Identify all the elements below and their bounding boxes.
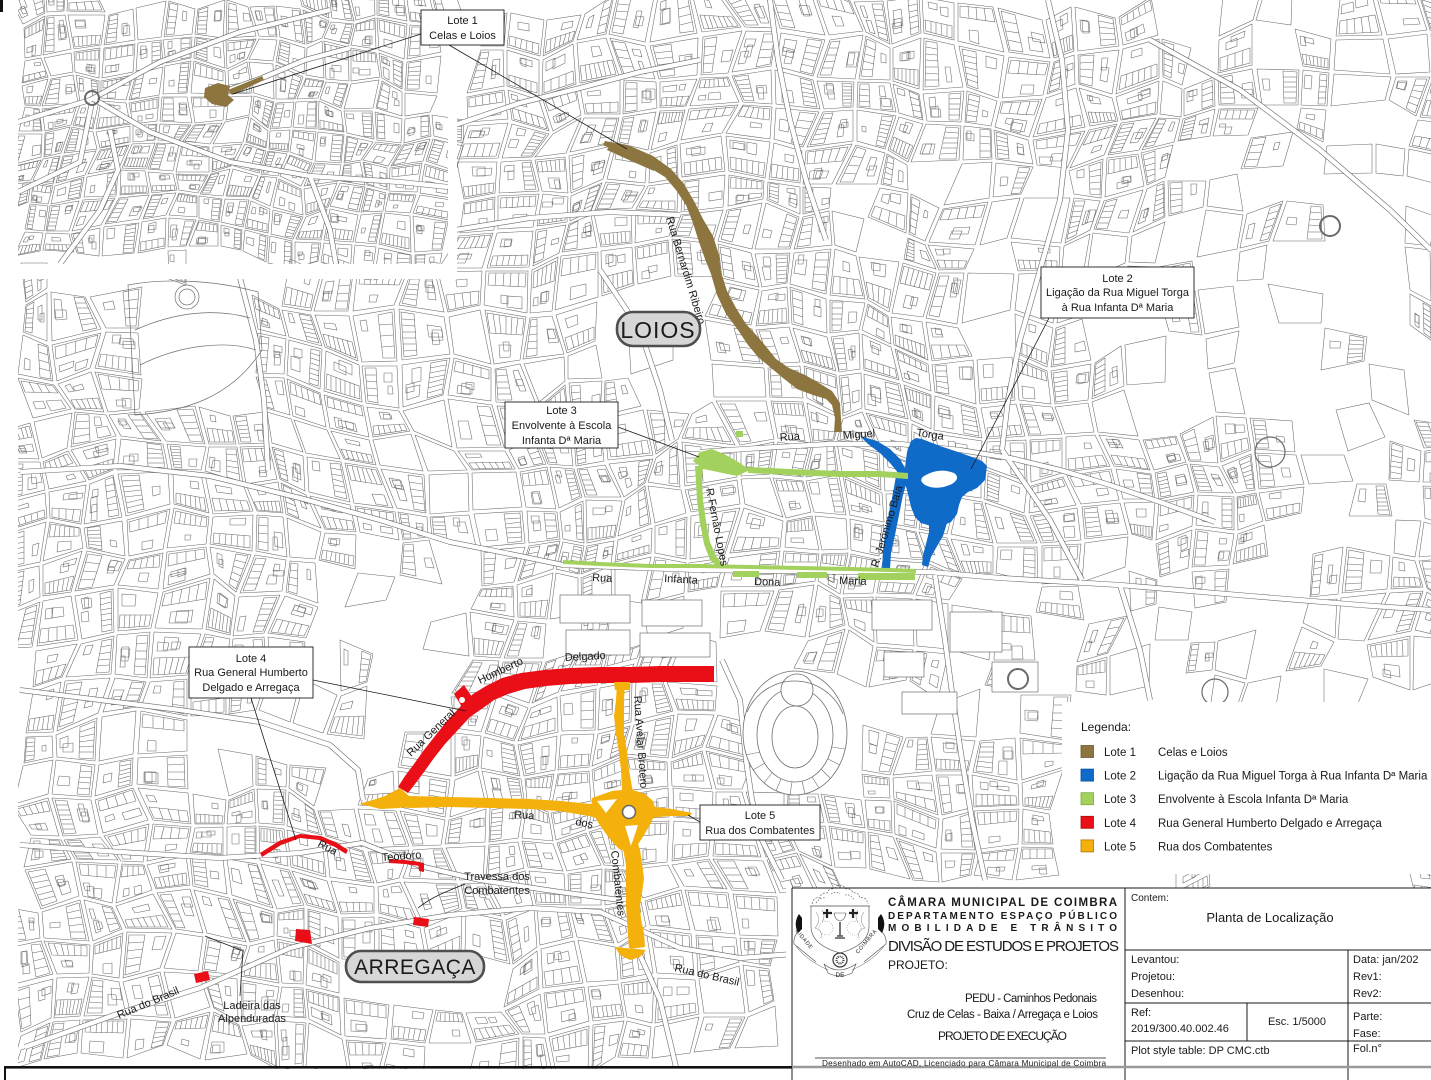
svg-text:Cruz de Celas - Baixa / Arrega: Cruz de Celas - Baixa / Arregaça e Loios: [907, 1009, 1098, 1021]
svg-text:Rua: Rua: [592, 572, 614, 585]
svg-text:LOIOS: LOIOS: [620, 317, 695, 343]
svg-text:Envolvente à Escola Infanta Dª: Envolvente à Escola Infanta Dª Maria: [1158, 794, 1349, 806]
svg-text:Lote 5: Lote 5: [1104, 841, 1136, 853]
svg-text:Miguel: Miguel: [842, 428, 875, 442]
svg-text:Rua dos Combatentes: Rua dos Combatentes: [1158, 841, 1273, 853]
svg-text:Desenhou:: Desenhou:: [1131, 988, 1184, 1000]
svg-text:Lote 3: Lote 3: [546, 405, 577, 417]
svg-text:Rev1:: Rev1:: [1353, 971, 1382, 983]
svg-text:Rua General Humberto: Rua General Humberto: [194, 667, 308, 679]
svg-text:Projetou:: Projetou:: [1131, 971, 1175, 983]
svg-text:Lote 5: Lote 5: [745, 810, 776, 822]
svg-text:PROJETO:: PROJETO:: [888, 958, 948, 972]
svg-text:Ladeira das: Ladeira das: [223, 1000, 281, 1012]
svg-text:Desenhado em AutoCAD, Licencia: Desenhado em AutoCAD, Licenciado para Câ…: [822, 1059, 1106, 1068]
svg-text:CÂMARA MUNICIPAL DE COIMBRA: CÂMARA MUNICIPAL DE COIMBRA: [888, 896, 1117, 909]
svg-text:Planta de Localização: Planta de Localização: [1206, 910, 1333, 925]
svg-text:Travessa dos: Travessa dos: [464, 871, 530, 883]
svg-text:Plot style table: DP CMC.ctb: Plot style table: DP CMC.ctb: [1131, 1045, 1270, 1057]
svg-text:Infanta: Infanta: [664, 573, 699, 587]
svg-text:Levantou:: Levantou:: [1131, 954, 1179, 966]
svg-text:Rua: Rua: [514, 809, 536, 822]
svg-text:à Rua Infanta Dª Maria: à Rua Infanta Dª Maria: [1062, 302, 1175, 314]
svg-text:Rua dos Combatentes: Rua dos Combatentes: [705, 825, 815, 837]
svg-text:Lote 1: Lote 1: [447, 15, 478, 27]
svg-text:Envolvente à Escola: Envolvente à Escola: [512, 420, 613, 432]
svg-text:Ref:: Ref:: [1131, 1007, 1151, 1019]
svg-text:DE: DE: [835, 972, 845, 979]
svg-text:PROJETO DE EXECUÇÃO: PROJETO DE EXECUÇÃO: [938, 1029, 1067, 1043]
svg-text:Ligação da Rua Miguel Torga: Ligação da Rua Miguel Torga: [1046, 287, 1190, 299]
svg-text:Contem:: Contem:: [1131, 893, 1169, 904]
svg-text:Dona: Dona: [754, 576, 782, 589]
svg-text:Lote 3: Lote 3: [1104, 794, 1136, 806]
svg-text:Rua: Rua: [779, 431, 801, 444]
svg-text:Infanta Dª Maria: Infanta Dª Maria: [522, 435, 602, 447]
svg-text:Delgado e Arregaça: Delgado e Arregaça: [202, 682, 300, 694]
svg-text:Parte:: Parte:: [1353, 1011, 1382, 1023]
svg-text:Celas e Loios: Celas e Loios: [429, 30, 496, 42]
svg-text:Combatentes: Combatentes: [464, 885, 530, 897]
svg-text:Delgado: Delgado: [565, 650, 607, 664]
svg-text:Maria: Maria: [839, 575, 868, 588]
svg-text:Alpenduradas: Alpenduradas: [218, 1013, 286, 1025]
svg-text:Data: jan/202: Data: jan/202: [1353, 954, 1418, 966]
svg-text:Lote 2: Lote 2: [1104, 771, 1136, 783]
svg-text:Ligação da Rua Miguel Torga à: Ligação da Rua Miguel Torga à Rua Infant…: [1158, 771, 1428, 783]
svg-text:Fase:: Fase:: [1353, 1028, 1381, 1040]
svg-text:PEDU - Caminhos Pedonais: PEDU - Caminhos Pedonais: [965, 993, 1097, 1005]
svg-text:Celas e Loios: Celas e Loios: [1158, 747, 1228, 759]
svg-text:Esc. 1/5000: Esc. 1/5000: [1268, 1016, 1326, 1028]
svg-text:2019/300.40.002.46: 2019/300.40.002.46: [1131, 1023, 1229, 1035]
svg-text:DIVISÃO DE ESTUDOS E PROJETOS: DIVISÃO DE ESTUDOS E PROJETOS: [888, 938, 1119, 955]
svg-text:Lote 1: Lote 1: [1104, 747, 1136, 759]
svg-text:Lote 2: Lote 2: [1102, 273, 1133, 285]
svg-text:Lote 4: Lote 4: [236, 653, 267, 665]
svg-text:Rev2:: Rev2:: [1353, 988, 1382, 1000]
svg-text:Rua General Humberto Delgado e: Rua General Humberto Delgado e Arregaça: [1158, 818, 1382, 830]
svg-text:Legenda:: Legenda:: [1081, 720, 1131, 734]
svg-text:Fol.n°: Fol.n°: [1353, 1043, 1382, 1055]
svg-text:Lote 4: Lote 4: [1104, 818, 1137, 830]
svg-text:ARREGAÇA: ARREGAÇA: [354, 956, 476, 979]
